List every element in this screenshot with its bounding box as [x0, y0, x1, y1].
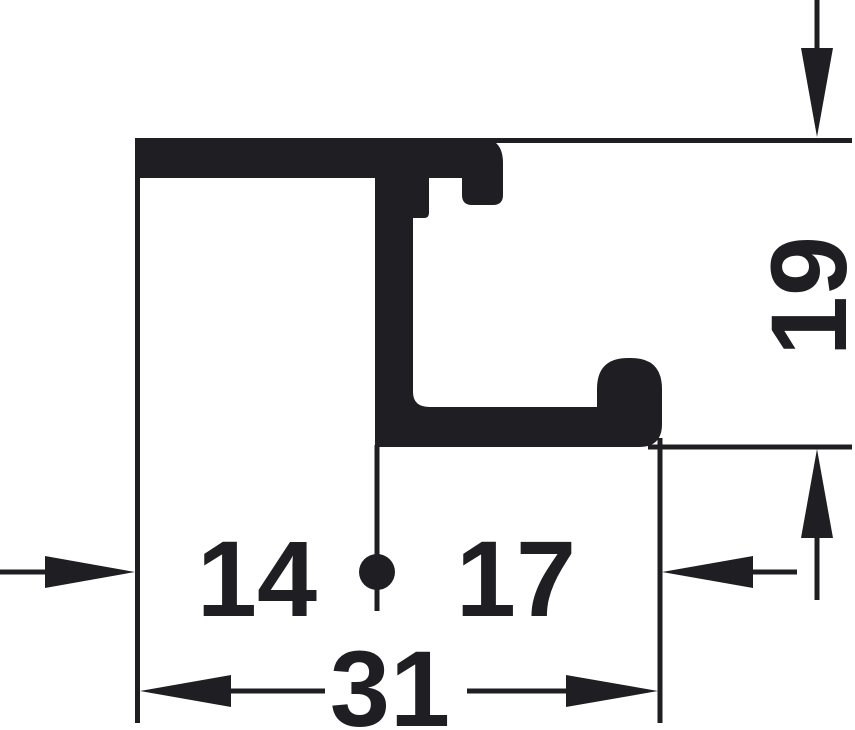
dim-31-arrow-right-icon — [566, 675, 658, 707]
profile-drawing-canvas: 14 17 31 19 — [0, 0, 855, 730]
dimension-label-19: 19 — [748, 236, 855, 356]
reference-dot — [359, 554, 395, 590]
dimension-label-31: 31 — [330, 628, 450, 730]
arrow-left-icon — [662, 556, 753, 588]
dim-31-arrow-left-icon — [140, 675, 231, 707]
arrow-down-icon — [801, 48, 833, 137]
dimension-label-14: 14 — [197, 518, 317, 639]
arrow-right-icon — [45, 556, 135, 588]
arrow-up-icon — [801, 449, 833, 538]
profile-cross-section-shape — [135, 138, 662, 447]
technical-drawing: 14 17 31 19 — [0, 0, 855, 730]
dimension-label-17: 17 — [456, 518, 576, 639]
